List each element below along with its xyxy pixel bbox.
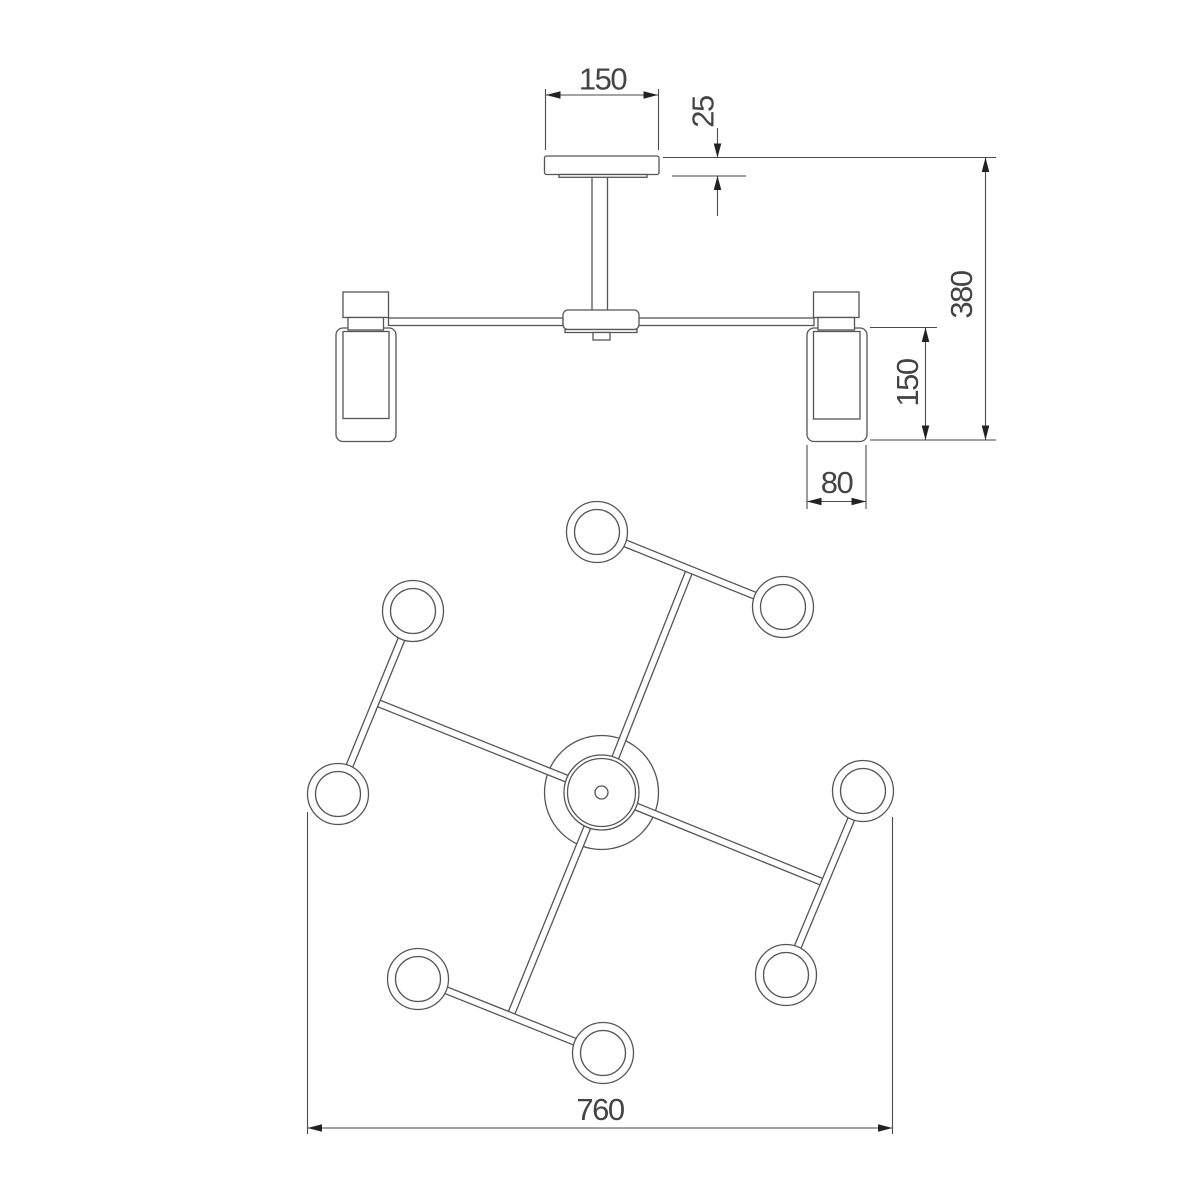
dim-shade-height-label: 150 xyxy=(890,358,925,406)
dim-overall-height-label: 380 xyxy=(944,270,979,318)
arrow-right-icon xyxy=(852,498,867,505)
dim-canopy-height-label: 25 xyxy=(686,96,721,128)
arrow-down-icon xyxy=(982,426,990,441)
dim-canopy-width: 150 xyxy=(546,62,659,151)
arrow-left-icon xyxy=(546,91,561,98)
dim-canopy-height: 25 xyxy=(663,96,996,216)
plan-hub xyxy=(564,755,639,830)
plan-shade-4 xyxy=(308,764,369,825)
plan-shade-8 xyxy=(573,1023,634,1084)
left-shade-diffuser xyxy=(343,332,389,419)
arrow-left-icon xyxy=(308,1124,323,1131)
left-neck xyxy=(348,318,384,331)
side-view xyxy=(336,156,867,442)
plan-shade-1 xyxy=(567,502,628,563)
arrow-down-icon xyxy=(714,144,722,158)
right-lamp xyxy=(807,292,867,442)
left-arm xyxy=(389,318,564,326)
arrow-up-icon xyxy=(982,158,990,173)
canopy-plate xyxy=(545,156,660,175)
technical-drawing-page: 150 25 380 150 xyxy=(0,0,1200,1200)
arrow-right-icon xyxy=(878,1124,893,1131)
plan-shade-5 xyxy=(833,761,894,822)
canopy-lip xyxy=(559,175,647,178)
dim-shade-width: 80 xyxy=(807,445,866,509)
right-socket xyxy=(814,292,860,318)
left-socket xyxy=(343,292,389,318)
right-shade-diffuser xyxy=(814,332,861,420)
plan-hub-center-hole xyxy=(595,786,608,799)
dim-overall-width-label: 760 xyxy=(576,1092,624,1127)
plan-shade-7 xyxy=(388,949,449,1010)
right-arm xyxy=(639,318,815,326)
hub-body xyxy=(563,310,639,330)
dim-shade-width-label: 80 xyxy=(821,465,854,500)
dim-shade-height: 150 xyxy=(870,328,937,441)
arrow-right-icon xyxy=(644,91,659,98)
technical-drawing-canvas: 150 25 380 150 xyxy=(0,0,1200,1200)
hub-stub xyxy=(593,333,610,341)
arrow-down-icon xyxy=(922,426,930,441)
left-lamp xyxy=(336,292,396,442)
stem xyxy=(592,176,608,312)
dim-canopy-width-label: 150 xyxy=(579,62,627,97)
plan-shade-3 xyxy=(383,581,444,642)
plan-view xyxy=(308,502,894,1084)
hub xyxy=(563,310,639,340)
arrow-up-icon xyxy=(922,328,930,343)
canopy xyxy=(545,156,660,177)
arrow-left-icon xyxy=(807,498,822,505)
arrow-up-icon xyxy=(714,176,722,190)
plan-shade-6 xyxy=(756,945,817,1006)
plan-shade-2 xyxy=(753,577,814,638)
dim-overall-height: 380 xyxy=(870,158,996,441)
right-neck xyxy=(818,318,855,331)
side-view-dimensions: 150 25 380 150 xyxy=(546,62,997,510)
